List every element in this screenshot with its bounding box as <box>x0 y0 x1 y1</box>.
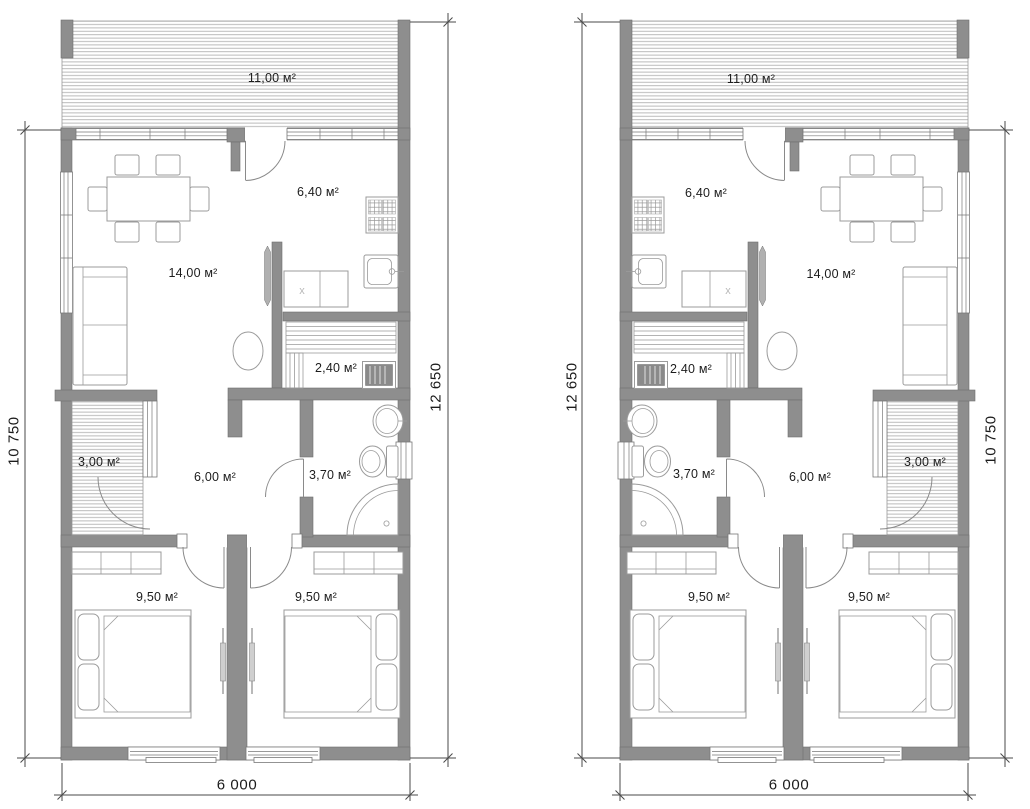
room-label-bedroom-2: 9,50 м² <box>295 590 337 604</box>
dimension-right: 12 650 <box>428 362 445 411</box>
room-label-hall: 6,00 м² <box>194 470 236 484</box>
floor-plan-sheet: x <box>0 0 1030 809</box>
room-label-bathroom: 3,70 м² <box>673 467 715 481</box>
dimension-bottom: 6 000 <box>217 777 258 794</box>
floor-plan-left-unit <box>17 13 456 801</box>
room-label-sauna: 2,40 м² <box>670 362 712 376</box>
room-label-bedroom-1: 9,50 м² <box>136 590 178 604</box>
room-label-terrace: 11,00 м² <box>248 71 296 85</box>
room-label-kitchen: 6,40 м² <box>297 185 339 199</box>
room-label-terrace: 11,00 м² <box>727 72 775 86</box>
room-label-porch: 3,00 м² <box>78 455 120 469</box>
dimension-left: 10 750 <box>6 416 23 465</box>
floor-plan-drawing: x <box>0 0 1030 809</box>
room-label-living: 14,00 м² <box>806 267 855 281</box>
floor-plan-right-unit <box>574 13 1013 801</box>
dimension-right: 10 750 <box>983 415 1000 464</box>
room-label-hall: 6,00 м² <box>789 470 831 484</box>
room-label-bedroom-1: 9,50 м² <box>688 590 730 604</box>
room-label-porch: 3,00 м² <box>904 455 946 469</box>
room-label-living: 14,00 м² <box>168 266 217 280</box>
room-label-bedroom-2: 9,50 м² <box>848 590 890 604</box>
room-label-kitchen: 6,40 м² <box>685 186 727 200</box>
dimension-bottom: 6 000 <box>769 777 810 794</box>
dimension-left: 12 650 <box>564 362 581 411</box>
room-label-sauna: 2,40 м² <box>315 361 357 375</box>
room-label-bathroom: 3,70 м² <box>309 468 351 482</box>
